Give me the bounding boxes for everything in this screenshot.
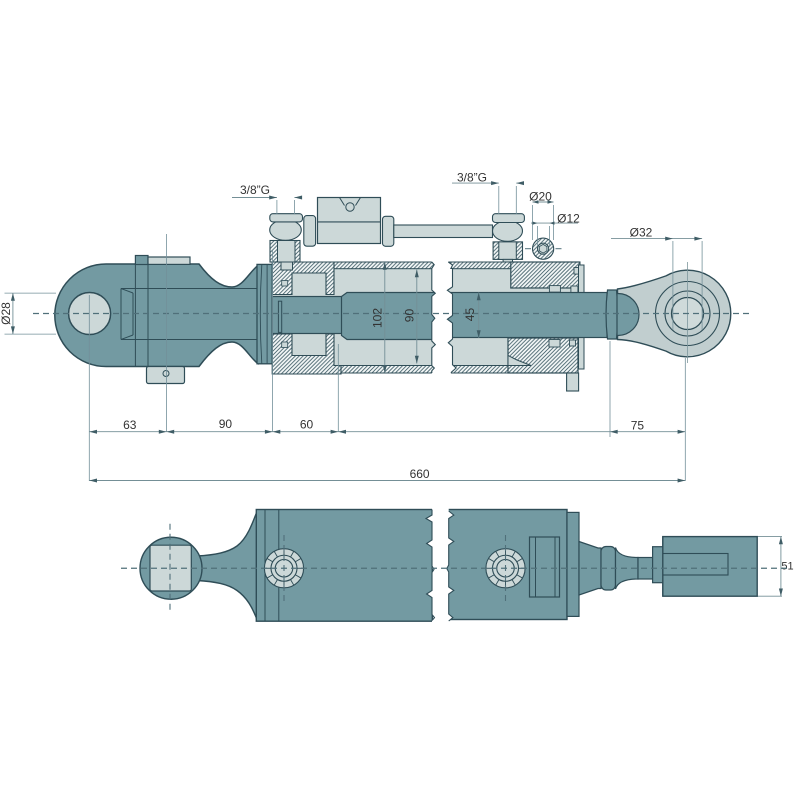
svg-text:Ø20: Ø20 (529, 190, 552, 204)
svg-text:90: 90 (219, 417, 233, 431)
svg-text:60: 60 (300, 418, 314, 432)
svg-text:Ø32: Ø32 (630, 225, 653, 239)
svg-text:3/8”G: 3/8”G (457, 170, 487, 184)
svg-text:Ø12: Ø12 (557, 212, 580, 226)
svg-text:51: 51 (781, 561, 793, 573)
svg-text:3/8”G: 3/8”G (240, 183, 270, 197)
svg-text:75: 75 (631, 419, 645, 433)
svg-text:102: 102 (371, 308, 385, 328)
svg-text:45: 45 (463, 308, 477, 322)
svg-text:63: 63 (123, 418, 137, 432)
svg-text:660: 660 (410, 467, 430, 481)
svg-text:Ø28: Ø28 (0, 302, 13, 325)
svg-text:90: 90 (403, 309, 417, 323)
